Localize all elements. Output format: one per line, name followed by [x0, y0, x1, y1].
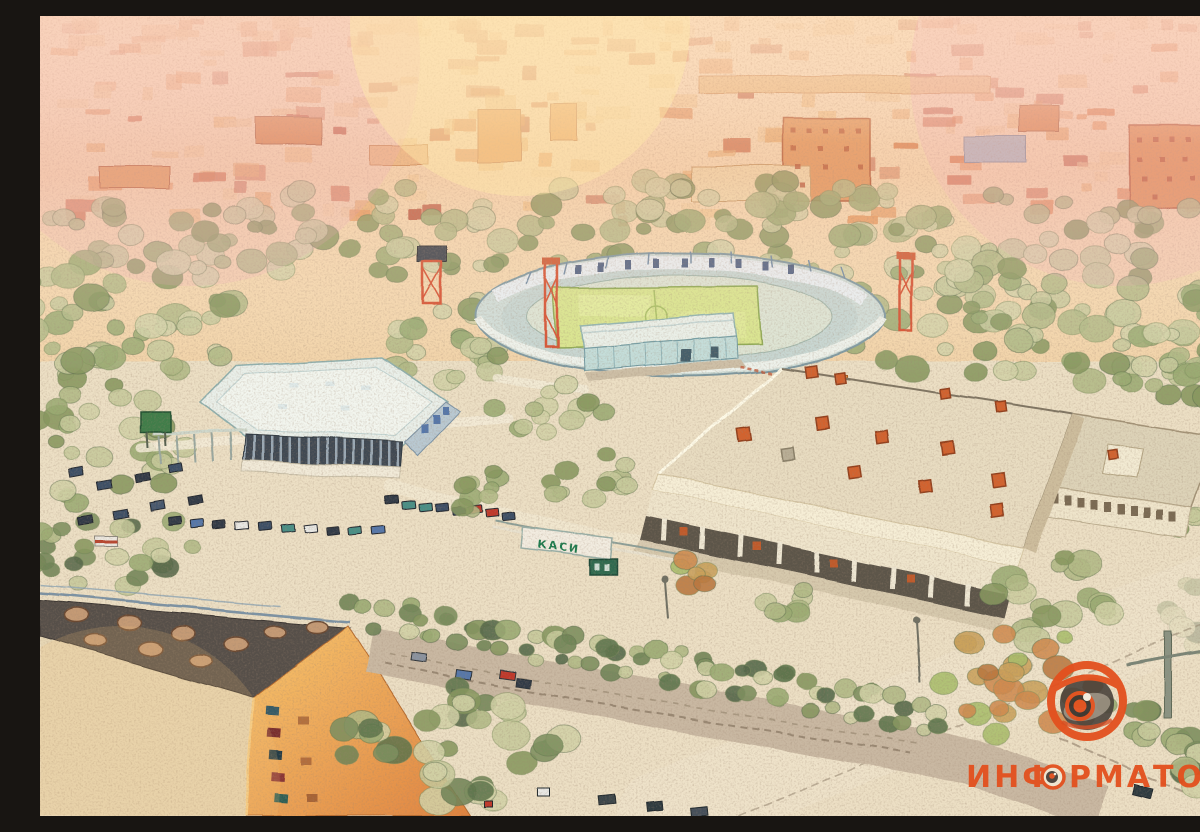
watermark-letter-eye-icon-part [1054, 773, 1057, 776]
eye-highlight [1083, 693, 1091, 701]
watermark-letter-eye-icon [1042, 766, 1064, 788]
eye-pupil [1074, 700, 1087, 713]
aerial-photo: КАСИ [40, 16, 1200, 816]
informator-eye-logo [1051, 665, 1123, 737]
scene-svg: КАСИ [40, 16, 1200, 816]
watermark-text-right: РМАТОР [1069, 760, 1200, 795]
